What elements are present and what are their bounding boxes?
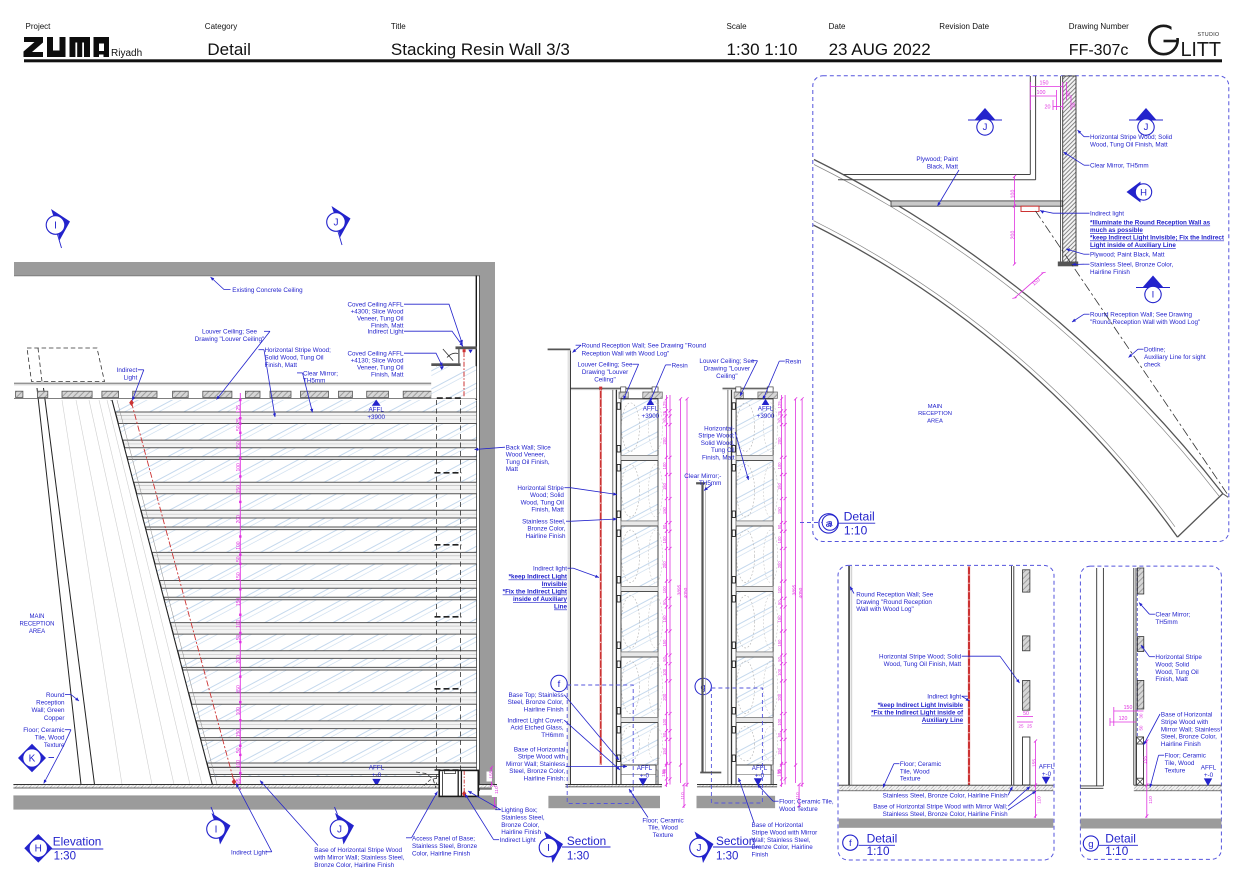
svg-text:Stainless Steel, Bronze: Stainless Steel, Bronze <box>412 843 478 850</box>
svg-text:Texture: Texture <box>1165 767 1186 774</box>
svg-text:Auxiliary Line: Auxiliary Line <box>922 717 964 724</box>
svg-text:50: 50 <box>1023 711 1029 717</box>
svg-text:Existing Concrete Ceiling: Existing Concrete Ceiling <box>232 287 303 294</box>
svg-text:150: 150 <box>1124 705 1133 711</box>
svg-text:Wood, Tung Oil Finish, Matt: Wood, Tung Oil Finish, Matt <box>884 661 962 668</box>
svg-text:Light inside of Auxiliary Line: Light inside of Auxiliary Line <box>1090 242 1176 249</box>
svg-text:Solid Wood,: Solid Wood, <box>701 440 735 447</box>
svg-text:Stainless Steel, Bronze Color,: Stainless Steel, Bronze Color, Hairline … <box>883 811 1008 818</box>
svg-text:J: J <box>337 824 342 835</box>
svg-text:50: 50 <box>777 600 782 605</box>
svg-text:K: K <box>29 753 36 764</box>
svg-text:Finish, Matt: Finish, Matt <box>371 372 404 379</box>
svg-text:H: H <box>1140 187 1147 198</box>
svg-text:Matt: Matt <box>506 466 518 473</box>
svg-text:Project: Project <box>26 22 52 31</box>
svg-text:110: 110 <box>1148 796 1154 804</box>
svg-text:25: 25 <box>777 410 782 415</box>
svg-text:200: 200 <box>662 693 667 701</box>
svg-text:Detail: Detail <box>207 40 250 59</box>
svg-text:150: 150 <box>777 639 782 647</box>
svg-text:200: 200 <box>236 515 242 524</box>
svg-text:Wood, Tung Oil: Wood, Tung Oil <box>1155 669 1198 676</box>
svg-text:Drawing "Louver: Drawing "Louver <box>704 365 750 372</box>
svg-text:Indirect Light Cover;: Indirect Light Cover; <box>507 718 564 725</box>
svg-text:Category: Category <box>205 22 237 31</box>
svg-text:+-0: +-0 <box>1042 771 1052 778</box>
svg-text:Wall with Wood Log": Wall with Wood Log" <box>856 606 914 613</box>
svg-text:Floor; Ceramic: Floor; Ceramic <box>642 818 683 825</box>
svg-text:AFFL: AFFL <box>368 407 384 414</box>
svg-text:AFFL: AFFL <box>758 406 774 413</box>
svg-text:25: 25 <box>1027 724 1033 729</box>
svg-text:Drawing Number: Drawing Number <box>1069 22 1129 31</box>
svg-text:Tile, Wood: Tile, Wood <box>648 825 678 832</box>
svg-text:Reception: Reception <box>36 700 65 707</box>
svg-text:Clear Mirror;-: Clear Mirror;- <box>684 473 721 480</box>
svg-text:Access Panel of Base;: Access Panel of Base; <box>412 836 475 843</box>
svg-text:*Illuminate the Round Receptio: *Illuminate the Round Reception Wall as <box>1090 220 1211 227</box>
svg-text:AREA: AREA <box>29 629 45 635</box>
svg-text:Wood Veneer,: Wood Veneer, <box>506 452 546 459</box>
svg-text:25: 25 <box>1018 724 1024 729</box>
svg-text:4050: 4050 <box>683 587 689 598</box>
svg-text:200: 200 <box>662 437 667 445</box>
svg-text:Stainless Steel,: Stainless Steel, <box>501 814 545 821</box>
svg-text:95: 95 <box>236 778 242 784</box>
svg-text:Indirect Light: Indirect Light <box>500 837 536 844</box>
svg-text:Round Reception Wall; See Draw: Round Reception Wall; See Drawing "Round <box>582 343 707 350</box>
svg-text:Clear Mirror, TH5mm: Clear Mirror, TH5mm <box>1090 163 1149 170</box>
svg-text:Mirror Wall; Stainless: Mirror Wall; Stainless <box>1161 726 1220 733</box>
svg-text:*keep Indirect Light: *keep Indirect Light <box>509 574 568 581</box>
svg-text:50: 50 <box>236 635 242 641</box>
svg-text:f: f <box>558 679 561 690</box>
svg-text:100: 100 <box>777 718 782 726</box>
svg-text:Bronze Color,: Bronze Color, <box>527 526 565 533</box>
svg-text:Title: Title <box>391 22 406 31</box>
svg-text:50: 50 <box>236 747 242 753</box>
svg-text:Bronze Color, Hairline Finish: Bronze Color, Hairline Finish <box>314 862 394 869</box>
svg-text:Round Reception Wall; See Draw: Round Reception Wall; See Drawing <box>1090 312 1192 319</box>
svg-text:200: 200 <box>777 561 782 569</box>
svg-text:Texture: Texture <box>653 832 674 839</box>
svg-text:155: 155 <box>661 769 666 777</box>
svg-text:Dotline;: Dotline; <box>1144 347 1166 354</box>
svg-text:50: 50 <box>1139 725 1144 730</box>
svg-text:+4130; Slice Wood: +4130; Slice Wood <box>351 358 404 365</box>
svg-text:25: 25 <box>662 410 667 415</box>
svg-text:100: 100 <box>236 619 242 628</box>
svg-text:110: 110 <box>680 792 685 800</box>
svg-text:Detail: Detail <box>844 509 875 523</box>
svg-text:Indirect light: Indirect light <box>1090 211 1124 218</box>
svg-text:Tile, Wood: Tile, Wood <box>900 768 930 775</box>
svg-text:100: 100 <box>662 586 667 594</box>
svg-text:Stainless Steel,: Stainless Steel, <box>522 519 566 526</box>
svg-text:Louver Ceiling; See: Louver Ceiling; See <box>699 358 754 365</box>
svg-text:150: 150 <box>662 506 667 514</box>
svg-text:Section: Section <box>716 834 755 848</box>
svg-text:J: J <box>697 843 702 854</box>
svg-text:Hairline Finish: Hairline Finish <box>526 533 566 540</box>
svg-text:Finish, Matt: Finish, Matt <box>1155 676 1188 683</box>
svg-text:3895: 3895 <box>792 584 798 595</box>
svg-text:Stripe Wood with Mirror: Stripe Wood with Mirror <box>752 829 818 836</box>
svg-text:AFFL: AFFL <box>637 765 653 772</box>
svg-text:Base of Horizontal: Base of Horizontal <box>752 822 803 829</box>
svg-text:Wood; Solid: Wood; Solid <box>530 492 564 499</box>
svg-text:155: 155 <box>489 770 495 778</box>
svg-text:Plywood; Paint: Plywood; Paint <box>916 156 958 163</box>
svg-text:100: 100 <box>662 718 667 726</box>
svg-text:100: 100 <box>662 462 667 470</box>
svg-text:J: J <box>334 217 339 228</box>
svg-text:Indirect Light: Indirect Light <box>231 850 267 857</box>
svg-text:50: 50 <box>777 417 782 422</box>
svg-text:Base Top; Stainless: Base Top; Stainless <box>508 692 563 699</box>
svg-text:100: 100 <box>1010 190 1016 199</box>
svg-text:*keep Indirect Light Invisible: *keep Indirect Light Invisible <box>878 702 964 709</box>
svg-text:Invisible: Invisible <box>542 581 568 588</box>
svg-text:I: I <box>1152 290 1155 301</box>
svg-text:Coved Ceiling AFFL: Coved Ceiling AFFL <box>348 351 404 358</box>
svg-text:Black, Matt: Black, Matt <box>927 163 958 170</box>
svg-text:AREA: AREA <box>927 418 943 424</box>
svg-text:1:30 1:10: 1:30 1:10 <box>727 40 798 59</box>
svg-text:Louver Ceiling; See: Louver Ceiling; See <box>202 329 257 336</box>
svg-text:Finish, Matt: Finish, Matt <box>702 454 735 461</box>
svg-text:I: I <box>215 824 218 835</box>
svg-text:30: 30 <box>1139 713 1144 718</box>
svg-text:4050: 4050 <box>798 587 804 598</box>
svg-text:125: 125 <box>662 401 667 409</box>
svg-text:Bronze Color,: Bronze Color, <box>501 822 539 829</box>
svg-text:TH5mm: TH5mm <box>1155 619 1177 626</box>
svg-text:much as possible: much as possible <box>1090 227 1143 234</box>
svg-text:Indirect Light: Indirect Light <box>367 329 403 336</box>
svg-text:Steel, Bronze Color,: Steel, Bronze Color, <box>1161 734 1217 741</box>
svg-text:Stripe Wood;: Stripe Wood; <box>698 433 735 440</box>
svg-text:155: 155 <box>1143 756 1149 764</box>
svg-text:Tile, Wood: Tile, Wood <box>35 735 65 742</box>
svg-text:Finish, Matt: Finish, Matt <box>531 507 564 514</box>
svg-text:26: 26 <box>1071 102 1076 108</box>
svg-text:Base of Horizontal Stripe Wood: Base of Horizontal Stripe Wood <box>314 847 402 854</box>
svg-text:200: 200 <box>236 655 242 664</box>
svg-text:check: check <box>1144 362 1161 369</box>
svg-text:100: 100 <box>236 707 242 716</box>
svg-text:Tile, Wood: Tile, Wood <box>1165 760 1195 767</box>
svg-text:Horizontal Stripe: Horizontal Stripe <box>1155 654 1202 661</box>
svg-text:150: 150 <box>777 747 782 755</box>
svg-text:90: 90 <box>1066 91 1071 97</box>
svg-text:100: 100 <box>662 536 667 544</box>
svg-text:150: 150 <box>662 639 667 647</box>
svg-text:Wood, Tung Oil Finish, Matt: Wood, Tung Oil Finish, Matt <box>1090 141 1168 148</box>
svg-text:Horizontal-: Horizontal- <box>704 426 734 433</box>
svg-text:MAIN: MAIN <box>30 614 45 620</box>
svg-text:Line: Line <box>554 604 567 611</box>
svg-text:*Fix the Indirect Light inside: *Fix the Indirect Light inside of <box>871 710 964 717</box>
svg-text:50: 50 <box>662 524 667 529</box>
svg-text:Wall; Green: Wall; Green <box>31 707 65 714</box>
svg-text:Ceiling": Ceiling" <box>594 376 616 383</box>
svg-text:Round: Round <box>46 692 65 699</box>
svg-text:Coved Ceiling AFFL: Coved Ceiling AFFL <box>348 302 404 309</box>
svg-text:J: J <box>1144 122 1149 133</box>
svg-text:100: 100 <box>236 760 242 769</box>
svg-text:Copper: Copper <box>44 715 65 722</box>
svg-text:200: 200 <box>1010 231 1016 240</box>
svg-text:150: 150 <box>777 506 782 514</box>
svg-text:Stainless Steel, Bronze Color,: Stainless Steel, Bronze Color, <box>1090 262 1174 269</box>
svg-text:150: 150 <box>236 441 242 450</box>
svg-text:150: 150 <box>236 598 242 607</box>
svg-text:Floor; Ceramic Tile,: Floor; Ceramic Tile, <box>779 799 834 806</box>
svg-text:1:10: 1:10 <box>1105 844 1128 858</box>
svg-text:125: 125 <box>236 405 242 414</box>
svg-text:Acid Etched Glass,: Acid Etched Glass, <box>510 725 563 732</box>
svg-text:Floor; Ceramic: Floor; Ceramic <box>23 727 64 734</box>
svg-text:200: 200 <box>777 437 782 445</box>
svg-text:Wood, Tung Oil: Wood, Tung Oil <box>521 499 564 506</box>
svg-text:1:10: 1:10 <box>867 844 890 858</box>
svg-text:50: 50 <box>662 417 667 422</box>
svg-text:Steel, Bronze Color,: Steel, Bronze Color, <box>508 699 564 706</box>
svg-text:Hairline Finish: Hairline Finish <box>1090 269 1130 276</box>
svg-text:20: 20 <box>1045 104 1051 110</box>
svg-text:110: 110 <box>1037 796 1043 804</box>
svg-text:Round Reception Wall; See: Round Reception Wall; See <box>856 592 934 599</box>
svg-text:100: 100 <box>1037 90 1046 96</box>
svg-text:Finish: Finish <box>752 852 769 859</box>
svg-text:150: 150 <box>777 615 782 623</box>
svg-text:Riyadh: Riyadh <box>111 48 142 59</box>
svg-text:50: 50 <box>662 600 667 605</box>
svg-text:Reception Wall with Wood Log": Reception Wall with Wood Log" <box>582 351 670 358</box>
svg-text:MAIN: MAIN <box>928 404 943 410</box>
svg-text:Tung Oil Finish,: Tung Oil Finish, <box>506 459 550 466</box>
svg-text:Hairline Finish: Hairline Finish <box>501 829 541 836</box>
svg-text:Tung Oil: Tung Oil <box>711 447 735 454</box>
svg-text:Scale: Scale <box>727 22 748 31</box>
svg-text:Louver Ceiling; See: Louver Ceiling; See <box>578 362 633 369</box>
svg-text:Base of Horizontal: Base of Horizontal <box>514 747 565 754</box>
svg-text:100: 100 <box>777 536 782 544</box>
svg-text:150: 150 <box>236 685 242 694</box>
svg-text:Stripe Wood with: Stripe Wood with <box>518 754 566 761</box>
svg-text:150: 150 <box>236 729 242 738</box>
svg-text:a: a <box>826 518 832 530</box>
svg-text:RECEPTION: RECEPTION <box>19 621 54 627</box>
svg-text:150: 150 <box>662 615 667 623</box>
svg-text:*keep Indirect Light Invisible: *keep Indirect Light Invisible; Fix the … <box>1090 235 1225 242</box>
svg-text:1:10: 1:10 <box>844 524 868 538</box>
svg-text:Horizontal Stripe: Horizontal Stripe <box>517 485 564 492</box>
svg-text:120: 120 <box>1119 716 1128 722</box>
svg-text:50: 50 <box>777 732 782 737</box>
svg-text:155: 155 <box>1031 759 1037 767</box>
svg-text:Lighting Box;: Lighting Box; <box>501 807 538 814</box>
svg-text:*Fix the Indirect Light: *Fix the Indirect Light <box>503 589 568 596</box>
svg-text:+3900: +3900 <box>642 413 660 420</box>
svg-text:Stripe Wood with: Stripe Wood with <box>1161 719 1209 726</box>
svg-text:100: 100 <box>777 586 782 594</box>
svg-text:100: 100 <box>236 463 242 472</box>
svg-text:Horizontal Stripe Wood;: Horizontal Stripe Wood; <box>265 347 332 354</box>
svg-text:Color, Hairline Finish: Color, Hairline Finish <box>412 850 471 857</box>
svg-text:Bronze Color, Hairline: Bronze Color, Hairline <box>752 844 814 851</box>
svg-text:Stainless Steel, Bronze Color,: Stainless Steel, Bronze Color, Hairline … <box>883 793 1008 800</box>
svg-text:H: H <box>35 844 42 855</box>
svg-text:Resin: Resin <box>785 358 802 365</box>
svg-text:FF-307c: FF-307c <box>1069 42 1129 59</box>
svg-text:Wood; Solid: Wood; Solid <box>1155 661 1189 668</box>
svg-text:110: 110 <box>494 786 500 794</box>
svg-text:AFFL: AFFL <box>369 765 385 772</box>
svg-text:50: 50 <box>777 656 782 661</box>
svg-text:Indirect light: Indirect light <box>927 694 961 701</box>
svg-text:100: 100 <box>662 668 667 676</box>
svg-text:100: 100 <box>777 668 782 676</box>
svg-text:Drawing "Round Reception: Drawing "Round Reception <box>856 599 932 606</box>
svg-text:J: J <box>983 122 988 133</box>
svg-text:150: 150 <box>662 482 667 490</box>
svg-text:1:30: 1:30 <box>54 850 76 862</box>
svg-text:+-0: +-0 <box>372 772 382 779</box>
svg-text:Floor; Ceramic: Floor; Ceramic <box>1165 753 1206 760</box>
svg-text:Plywood; Paint Black, Matt: Plywood; Paint Black, Matt <box>1090 252 1165 259</box>
svg-text:AFFL: AFFL <box>1201 765 1217 772</box>
svg-text:23 AUG 2022: 23 AUG 2022 <box>829 40 931 59</box>
svg-text:TH6mm: TH6mm <box>541 732 563 739</box>
svg-text:Light: Light <box>124 374 138 381</box>
svg-text:150: 150 <box>662 747 667 755</box>
svg-text:Veneer, Tung Oil: Veneer, Tung Oil <box>357 365 404 372</box>
svg-text:Base of Horizontal Stripe Wood: Base of Horizontal Stripe Wood with Mirr… <box>873 804 1008 811</box>
svg-text:Indirect: Indirect <box>117 367 138 374</box>
svg-text:STUDIO: STUDIO <box>1198 32 1220 38</box>
svg-text:200: 200 <box>662 561 667 569</box>
svg-text:200: 200 <box>777 693 782 701</box>
svg-text:Hairline Finish:: Hairline Finish: <box>524 775 566 782</box>
svg-text:with Mirror Wall; Stainless St: with Mirror Wall; Stainless Steel, <box>313 854 404 861</box>
svg-text:1:30: 1:30 <box>567 850 589 862</box>
svg-text:Revision Date: Revision Date <box>939 22 989 31</box>
svg-text:Elevation: Elevation <box>53 834 102 848</box>
svg-text:+3900: +3900 <box>757 413 775 420</box>
svg-text:Indirect light: Indirect light <box>533 566 567 573</box>
svg-text:RECEPTION: RECEPTION <box>918 411 952 417</box>
svg-text:3895: 3895 <box>677 584 683 595</box>
svg-text:100: 100 <box>236 541 242 550</box>
svg-text:Horizontal Stripe Wood; Solid: Horizontal Stripe Wood; Solid <box>879 654 962 661</box>
svg-text:Solid Wood, Tung Oil: Solid Wood, Tung Oil <box>265 354 324 361</box>
svg-text:Texture: Texture <box>900 776 921 783</box>
svg-text:+4300; Slice Wood: +4300; Slice Wood <box>351 309 404 316</box>
svg-text:+-0: +-0 <box>1204 772 1214 779</box>
svg-text:"Round Reception Wall with Woo: "Round Reception Wall with Wood Log" <box>1090 319 1200 326</box>
svg-text:+3900: +3900 <box>367 414 385 421</box>
svg-text:Wood Texture: Wood Texture <box>779 806 818 813</box>
svg-text:LITT: LITT <box>1181 39 1221 61</box>
svg-text:Horizontal Stripe Wood; Solid: Horizontal Stripe Wood; Solid <box>1090 134 1173 141</box>
svg-text:Floor; Ceramic: Floor; Ceramic <box>900 761 941 768</box>
svg-text:50: 50 <box>662 656 667 661</box>
svg-text:50: 50 <box>236 556 242 562</box>
svg-text:Stacking Resin Wall 3/3: Stacking Resin Wall 3/3 <box>391 40 570 59</box>
svg-text:Base of Horizontal: Base of Horizontal <box>1161 712 1212 719</box>
svg-text:50: 50 <box>236 425 242 431</box>
svg-text:Drawing "Louver Ceiling": Drawing "Louver Ceiling" <box>195 336 265 343</box>
svg-text:Veneer, Tung Oil: Veneer, Tung Oil <box>357 316 404 323</box>
svg-text:150: 150 <box>1040 81 1049 87</box>
svg-text:TH5mm: TH5mm <box>303 378 325 385</box>
svg-text:g: g <box>1088 839 1093 850</box>
svg-text:AFFL: AFFL <box>752 765 768 772</box>
svg-text:150: 150 <box>236 485 242 494</box>
svg-text:Section: Section <box>567 834 606 848</box>
svg-text:Hairline Finish: Hairline Finish <box>524 706 564 713</box>
svg-text:AFFL: AFFL <box>1039 764 1055 771</box>
svg-text:Hairline Finish: Hairline Finish <box>1161 741 1201 748</box>
svg-text:Drawing "Louver: Drawing "Louver <box>582 369 628 376</box>
svg-text:50: 50 <box>777 524 782 529</box>
svg-text:150: 150 <box>236 572 242 581</box>
svg-text:Steel, Bronze Color,: Steel, Bronze Color, <box>509 768 565 775</box>
svg-text:Resin: Resin <box>672 362 689 369</box>
svg-text:Wall; Stainless Steel,: Wall; Stainless Steel, <box>752 837 811 844</box>
svg-text:Texture: Texture <box>44 742 65 749</box>
svg-text:f: f <box>849 838 852 849</box>
svg-text:150: 150 <box>777 482 782 490</box>
svg-text:I: I <box>547 843 550 854</box>
svg-text:Ceiling": Ceiling" <box>716 373 738 380</box>
svg-text:Back Wall; Slice: Back Wall; Slice <box>506 445 551 452</box>
svg-text:Clear Mirror;: Clear Mirror; <box>1155 612 1190 619</box>
svg-text:Date: Date <box>829 22 846 31</box>
svg-text:Finish, Matt: Finish, Matt <box>265 362 298 369</box>
svg-text:100: 100 <box>777 462 782 470</box>
svg-text:Clear Mirror;: Clear Mirror; <box>303 370 338 377</box>
svg-text:I: I <box>54 220 57 231</box>
svg-text:1:30: 1:30 <box>716 850 738 862</box>
svg-text:Mirror Wall; Stainless: Mirror Wall; Stainless <box>506 761 565 768</box>
svg-text:AFFL: AFFL <box>643 406 659 413</box>
svg-text:125: 125 <box>777 401 782 409</box>
svg-text:inside of Auxiliary: inside of Auxiliary <box>513 596 568 603</box>
svg-text:50: 50 <box>662 732 667 737</box>
svg-text:Auxiliary Line for sight: Auxiliary Line for sight <box>1144 354 1206 361</box>
svg-text:155: 155 <box>776 769 781 777</box>
